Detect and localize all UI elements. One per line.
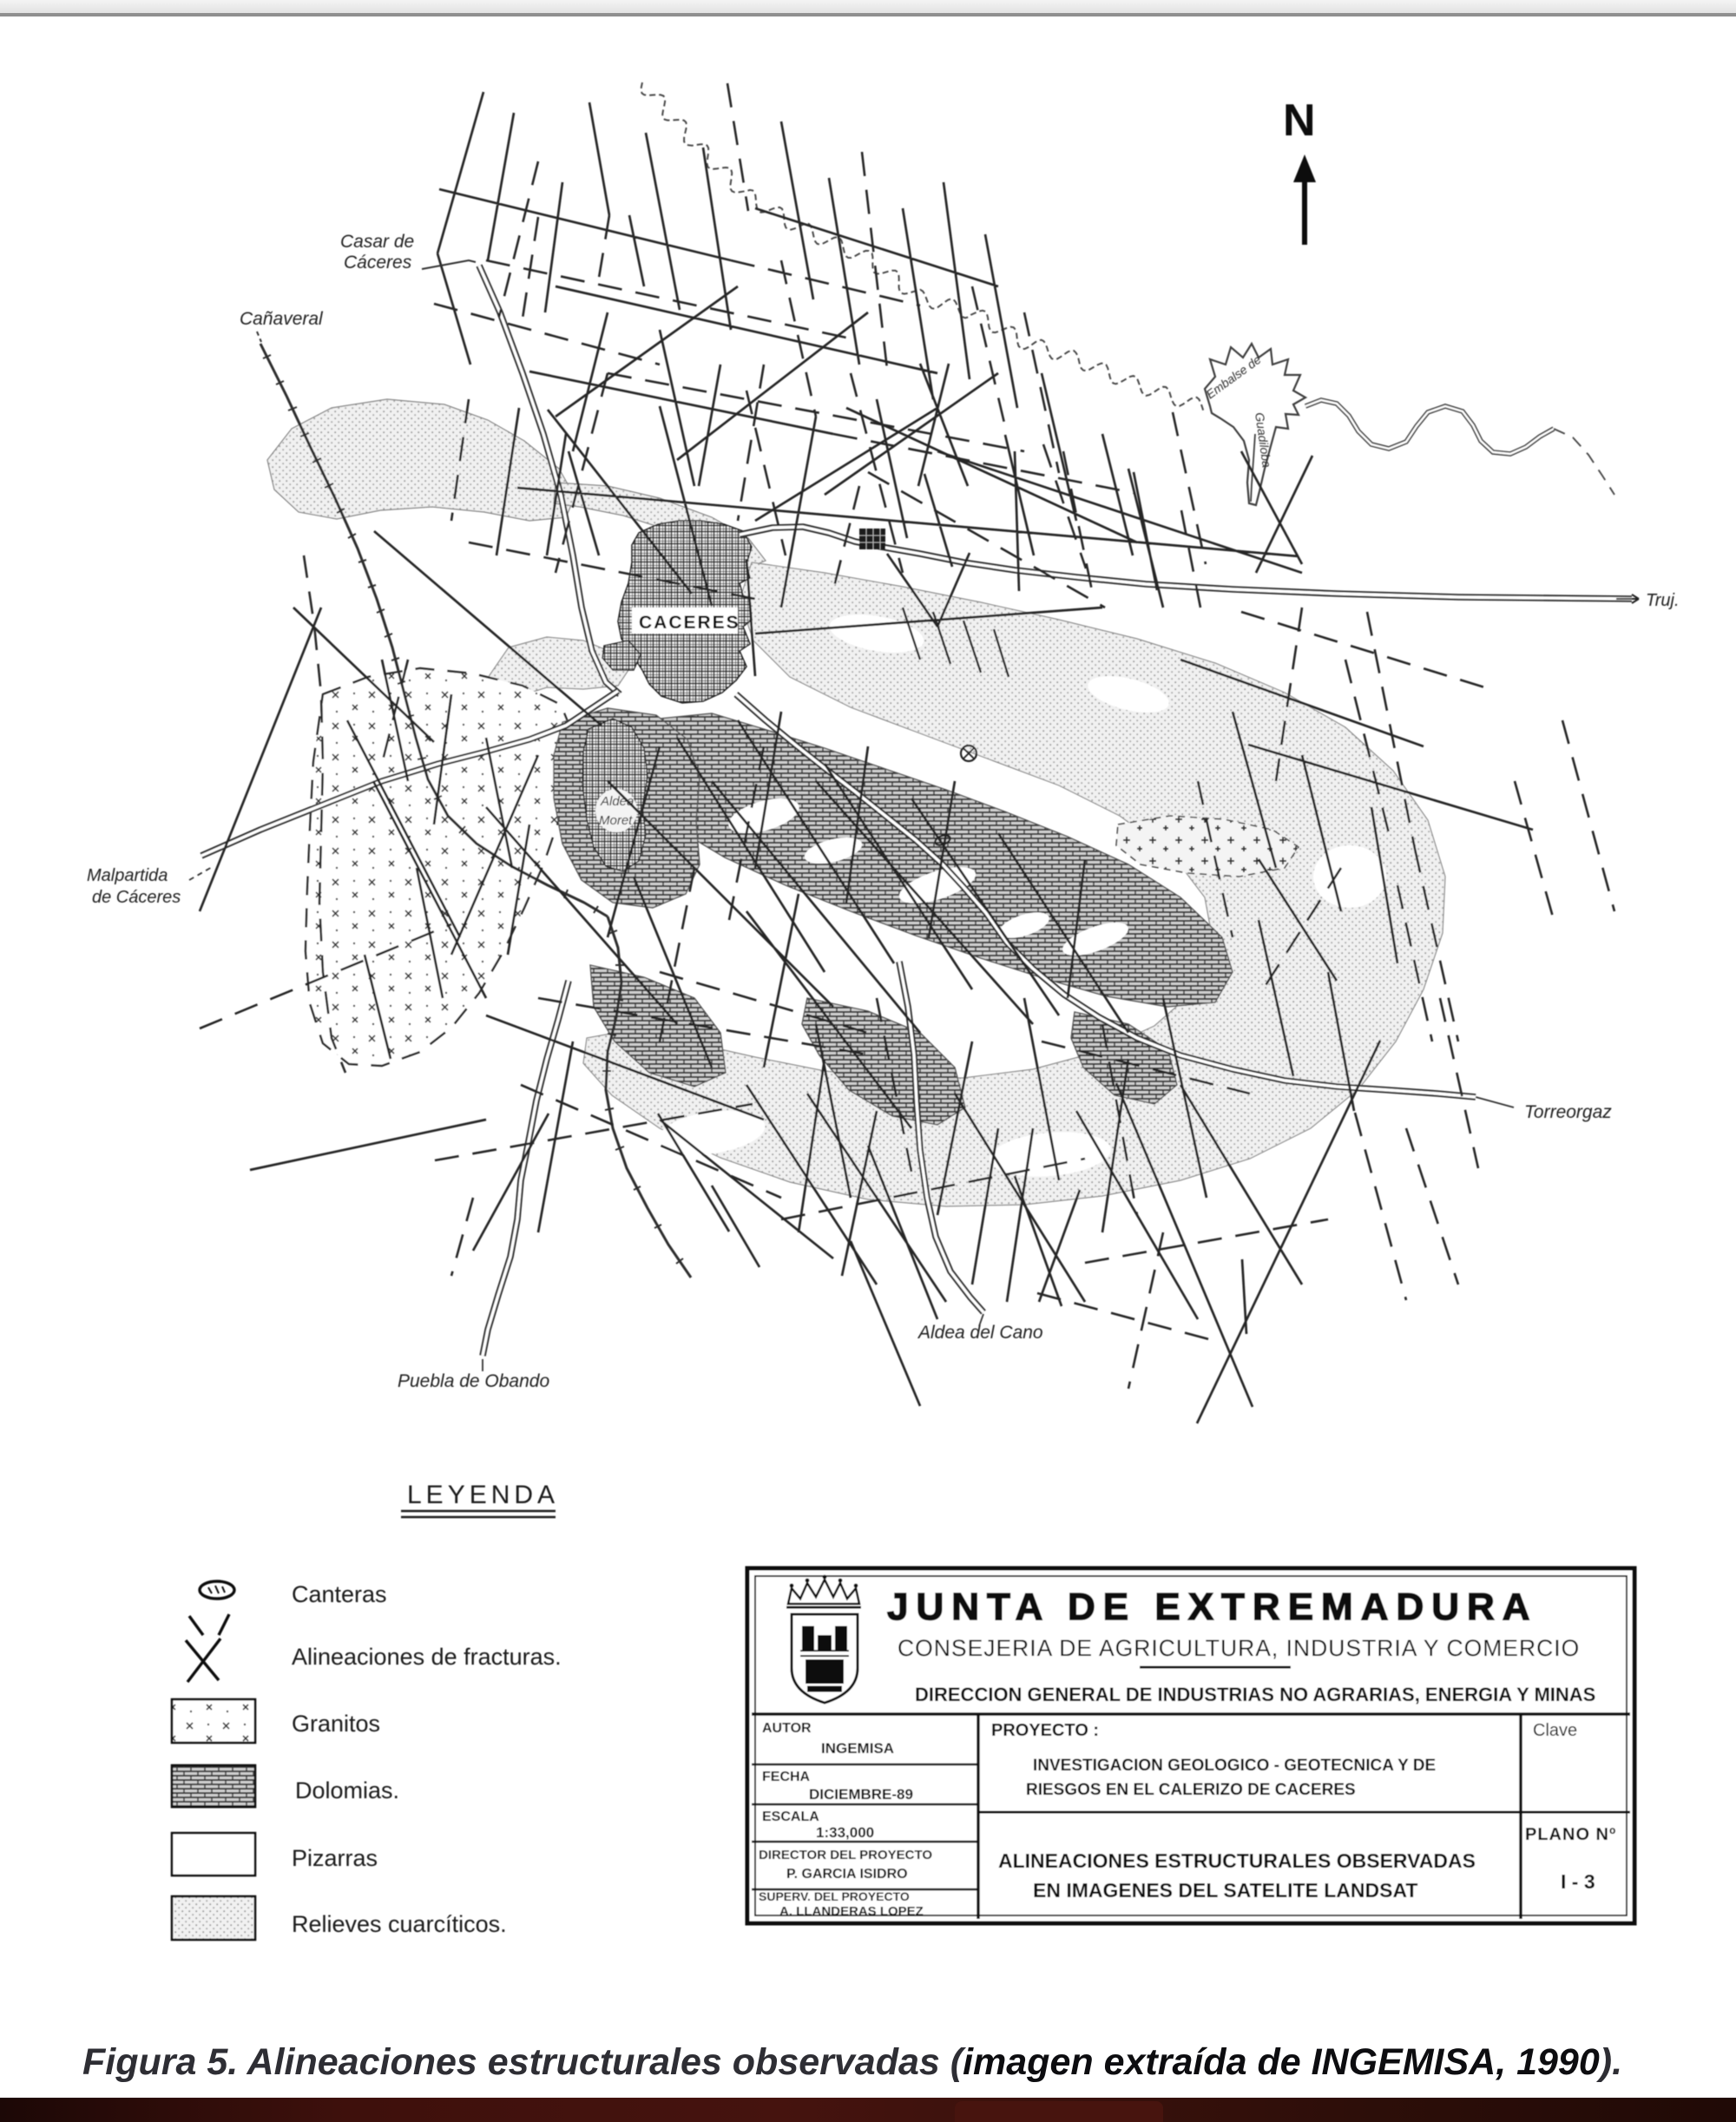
svg-text:ALINEACIONES ESTRUCTURALES O: ALINEACIONES ESTRUCTURALES OBSERVADAS [998,1849,1476,1872]
svg-text:INGEMISA: INGEMISA [821,1740,894,1757]
svg-text:FECHA: FECHA [762,1770,811,1784]
svg-text:Cañaveral: Cañaveral [240,309,324,329]
svg-text:Torreorgaz: Torreorgaz [1524,1102,1612,1122]
svg-text:JUNTA DE EXTREMADURA: JUNTA DE EXTREMADURA [887,1586,1538,1628]
svg-text:Granitos: Granitos [292,1711,380,1737]
svg-text:Canteras: Canteras [292,1581,387,1607]
svg-text:SUPERV. DEL PROYECTO: SUPERV. DEL PROYECTO [759,1889,910,1903]
svg-text:Cáceres: Cáceres [344,253,412,273]
svg-text:Truj.: Truj. [1646,591,1680,610]
svg-text:RIESGOS EN EL CALERIZO DE: RIESGOS EN EL CALERIZO DE CACERES [1026,1781,1356,1799]
svg-text:EN IMAGENES DEL SATELITE L: EN IMAGENES DEL SATELITE LANDSAT [1033,1879,1417,1902]
svg-text:Guadiloba: Guadiloba [1253,411,1274,469]
svg-text:Alineaciones de fracturas.: Alineaciones de fracturas. [292,1644,562,1670]
svg-text:Clave: Clave [1533,1721,1577,1740]
svg-text:DICIEMBRE-89: DICIEMBRE-89 [809,1786,913,1803]
svg-text:ESCALA: ESCALA [762,1810,819,1824]
svg-text:DIRECCION GENERAL DE INDUST: DIRECCION GENERAL DE INDUSTRIAS NO AGRAR… [915,1684,1595,1705]
svg-text:LEYENDA: LEYENDA [407,1481,559,1509]
svg-text:I - 3: I - 3 [1561,1870,1595,1893]
svg-text:DIRECTOR DEL PROYECTO: DIRECTOR DEL PROYECTO [759,1848,932,1862]
svg-text:Dolomias.: Dolomias. [295,1777,399,1803]
svg-text:A. LLANDERAS LOPEZ: A. LLANDERAS LOPEZ [779,1904,924,1919]
svg-text:Moret: Moret [599,813,633,828]
svg-text:CONSEJERIA DE AGRICULTURA,: CONSEJERIA DE AGRICULTURA, INDUSTRIA Y C… [898,1635,1580,1661]
svg-text:Casar de: Casar de [340,232,414,252]
svg-text:AUTOR: AUTOR [762,1721,812,1736]
svg-text:N: N [1283,95,1316,146]
svg-text:Pizarras: Pizarras [292,1845,378,1871]
svg-text:Relieves cuarcíticos.: Relieves cuarcíticos. [292,1911,507,1937]
svg-text:P. GARCIA ISIDRO: P. GARCIA ISIDRO [786,1867,908,1882]
svg-text:1:33,000: 1:33,000 [816,1824,874,1841]
svg-text:Puebla de Obando: Puebla de Obando [398,1371,549,1391]
svg-text:CACERES: CACERES [639,613,740,633]
svg-text:PLANO Nº: PLANO Nº [1525,1825,1616,1844]
svg-text:PROYECTO :: PROYECTO : [991,1721,1099,1740]
svg-text:Malpartida: Malpartida [87,866,168,885]
svg-text:INVESTIGACION GEOLOGICO - GEO: INVESTIGACION GEOLOGICO - GEOTECNICA Y D… [1033,1757,1436,1775]
svg-text:de Cáceres: de Cáceres [92,888,181,907]
